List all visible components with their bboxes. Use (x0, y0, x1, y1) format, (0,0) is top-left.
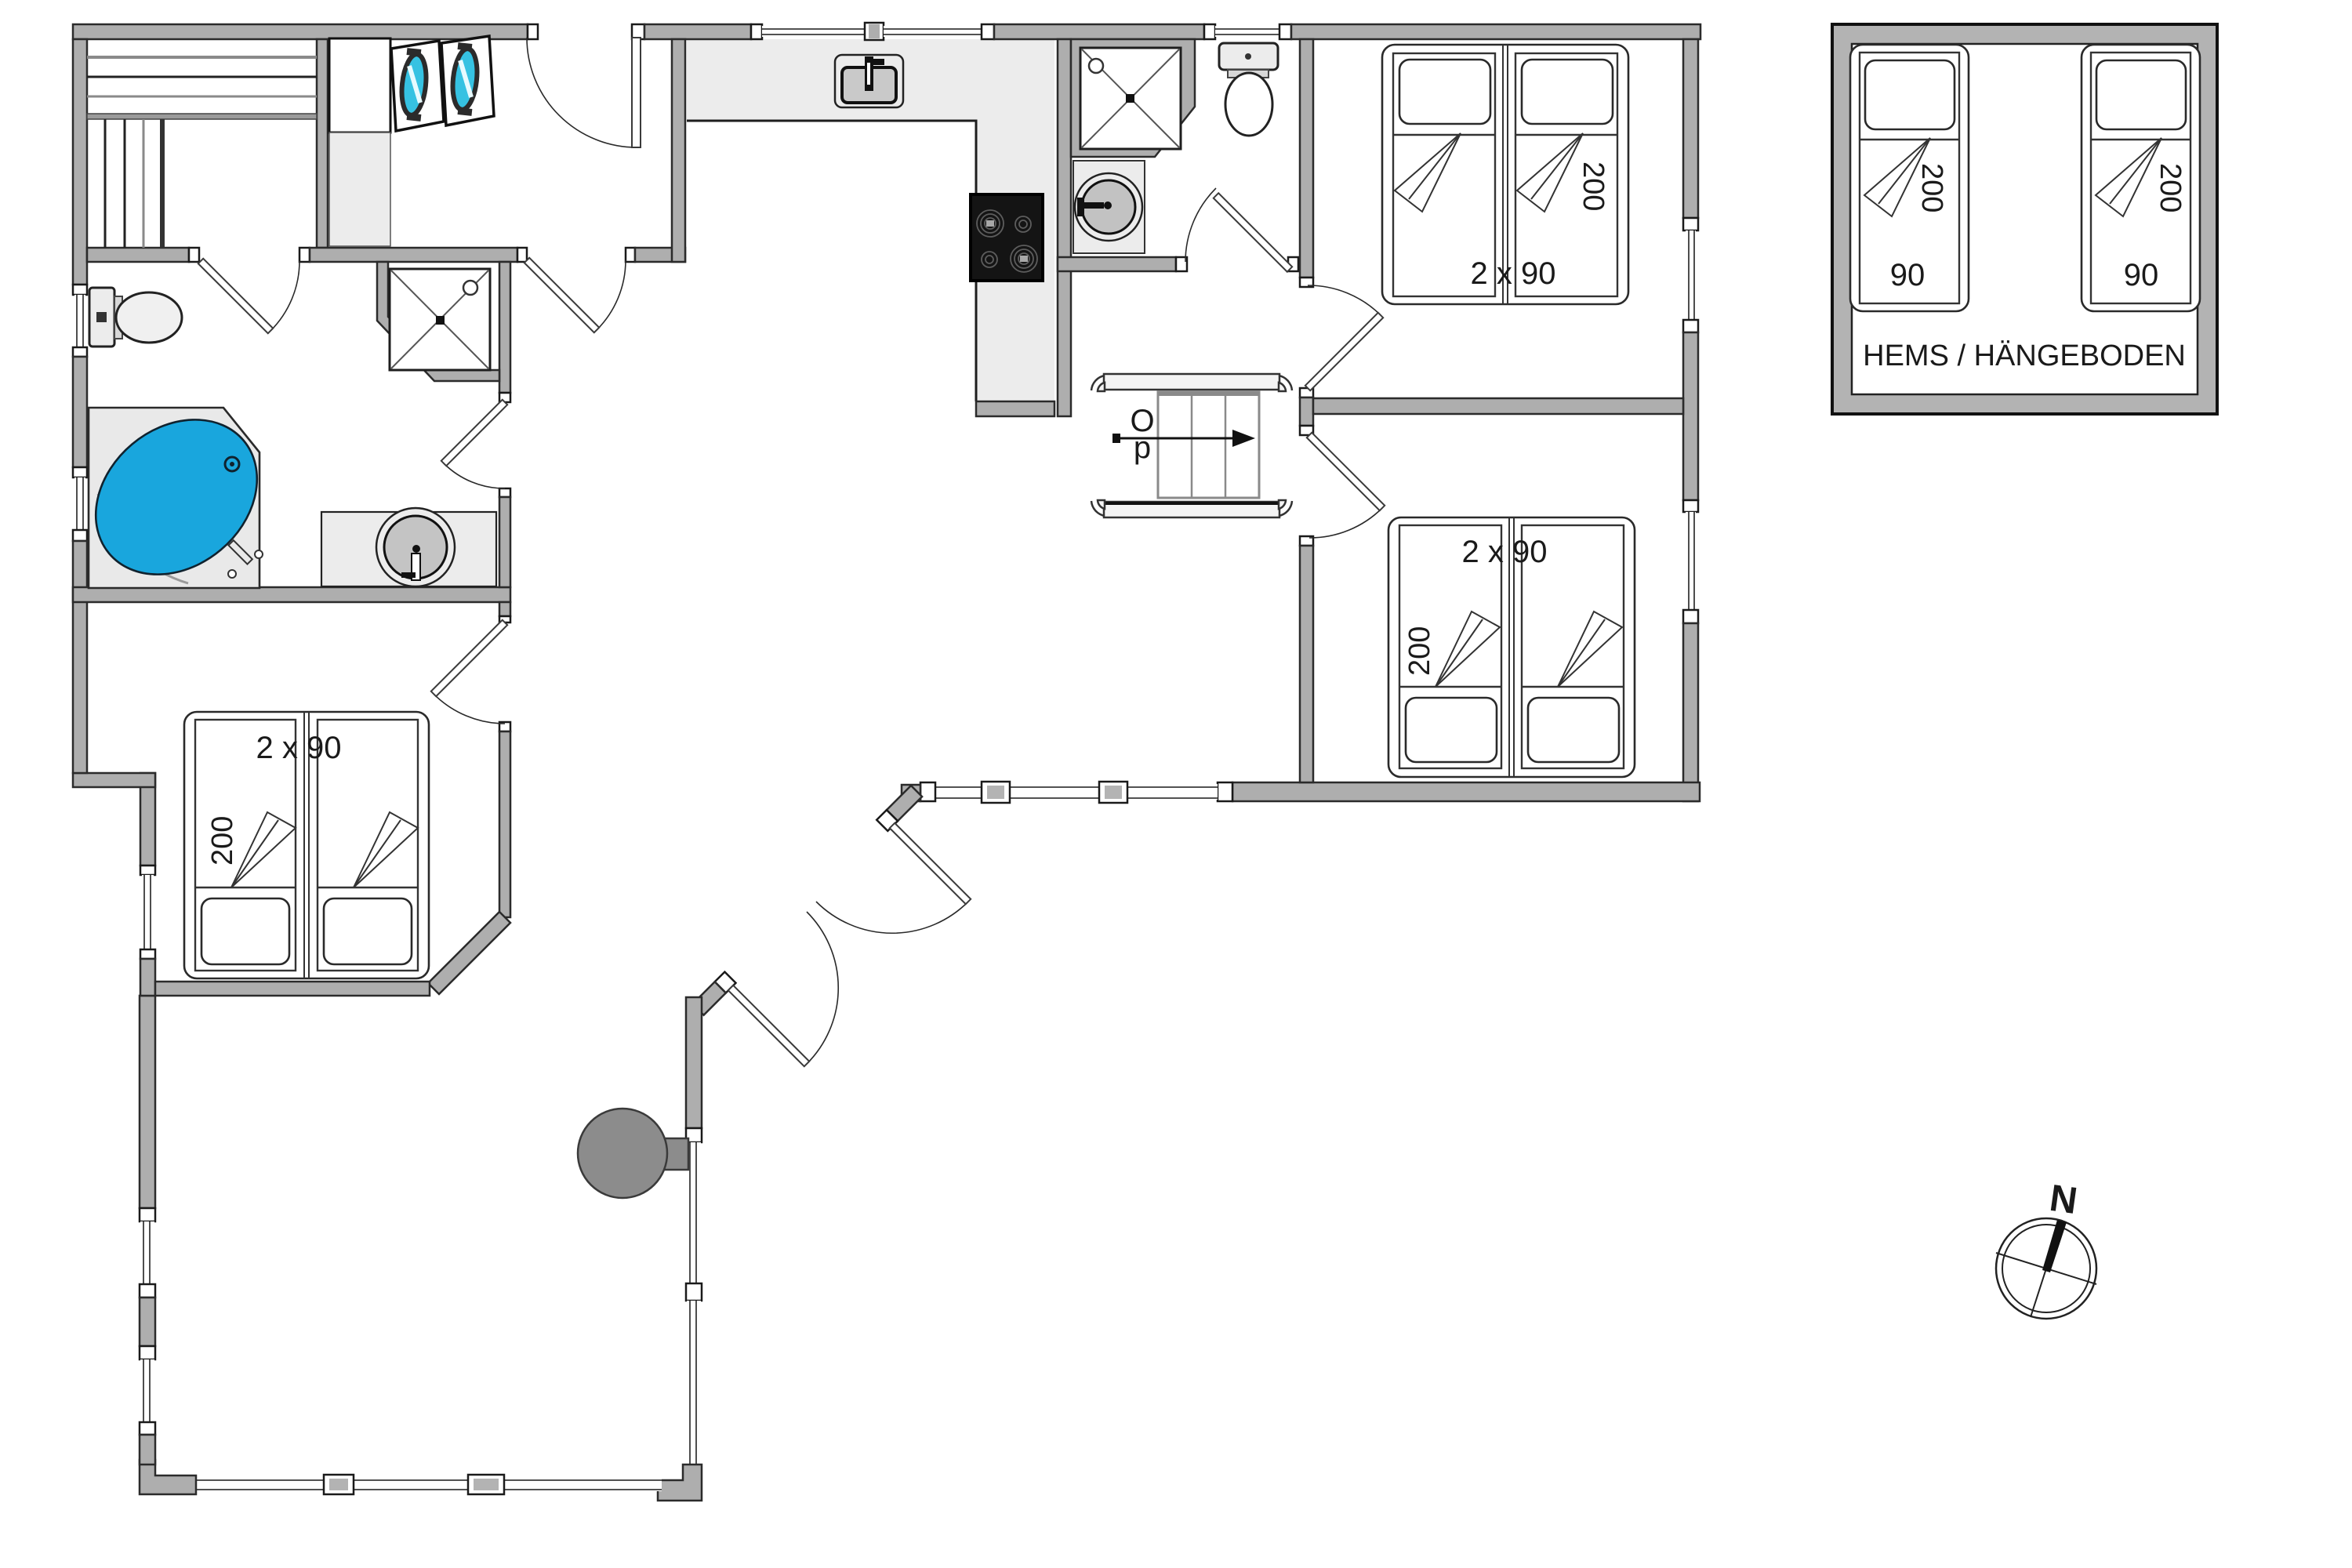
svg-text:p: p (1134, 430, 1151, 465)
svg-text:2 x 90: 2 x 90 (1471, 256, 1556, 291)
svg-text:200: 200 (1577, 162, 1610, 211)
svg-text:200: 200 (2154, 163, 2187, 212)
svg-text:HEMS / HÄNGEBODEN: HEMS / HÄNGEBODEN (1863, 339, 2186, 372)
svg-text:200: 200 (1915, 163, 1948, 212)
svg-text:200: 200 (1403, 626, 1436, 676)
svg-text:2 x 90: 2 x 90 (256, 731, 342, 765)
svg-text:2 x 90: 2 x 90 (1462, 535, 1548, 569)
svg-text:N: N (2047, 1178, 2080, 1222)
svg-text:90: 90 (1890, 258, 1926, 292)
svg-text:200: 200 (206, 816, 239, 866)
svg-text:90: 90 (2124, 258, 2159, 292)
